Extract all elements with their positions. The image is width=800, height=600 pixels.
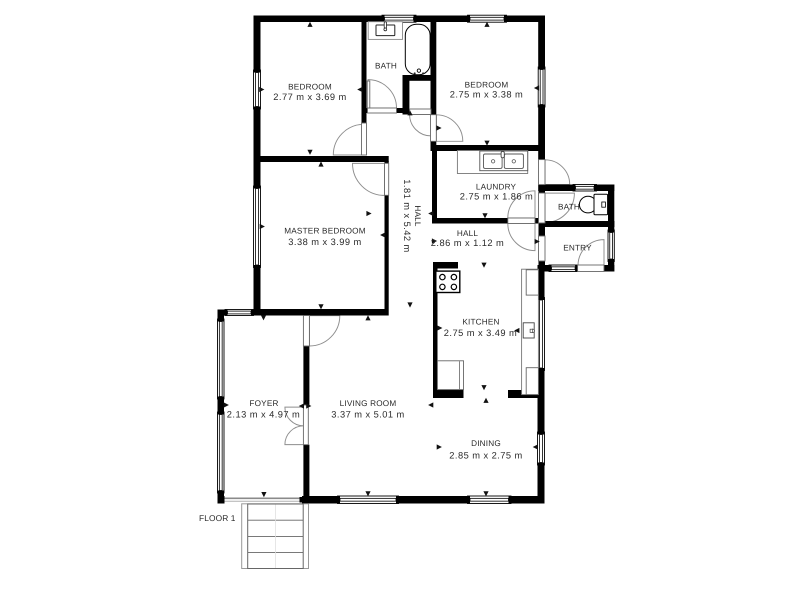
svg-text:FLOOR 1: FLOOR 1	[199, 513, 236, 523]
svg-text:BEDROOM: BEDROOM	[465, 81, 509, 90]
svg-text:ENTRY: ENTRY	[563, 243, 592, 252]
svg-text:2.75 m x 3.49 m: 2.75 m x 3.49 m	[444, 328, 517, 338]
svg-text:3.37 m x 5.01 m: 3.37 m x 5.01 m	[331, 410, 404, 420]
svg-text:HALL: HALL	[457, 229, 479, 238]
svg-text:3.38 m x 3.99 m: 3.38 m x 3.99 m	[288, 237, 361, 247]
svg-text:HALL: HALL	[413, 205, 422, 227]
svg-text:FOYER: FOYER	[249, 399, 278, 408]
svg-text:2.75 m x 3.38 m: 2.75 m x 3.38 m	[450, 90, 523, 100]
svg-text:BATH: BATH	[375, 61, 397, 70]
svg-text:2.86 m x 1.12 m: 2.86 m x 1.12 m	[431, 238, 504, 248]
svg-text:2.77 m x 3.69 m: 2.77 m x 3.69 m	[273, 92, 346, 102]
svg-text:KITCHEN: KITCHEN	[462, 318, 499, 327]
svg-text:BATH: BATH	[558, 202, 580, 211]
svg-text:2.75 m x 1.86 m: 2.75 m x 1.86 m	[460, 191, 533, 201]
svg-text:2.85 m x 2.75 m: 2.85 m x 2.75 m	[449, 451, 522, 461]
svg-text:MASTER BEDROOM: MASTER BEDROOM	[284, 226, 366, 235]
svg-text:1.81 m x 5.42 m: 1.81 m x 5.42 m	[402, 179, 412, 252]
svg-text:BEDROOM: BEDROOM	[288, 82, 332, 91]
svg-text:LIVING ROOM: LIVING ROOM	[340, 399, 397, 408]
svg-text:LAUNDRY: LAUNDRY	[476, 182, 517, 191]
svg-text:DINING: DINING	[471, 439, 501, 448]
svg-text:2.13 m x 4.97 m: 2.13 m x 4.97 m	[227, 410, 300, 420]
